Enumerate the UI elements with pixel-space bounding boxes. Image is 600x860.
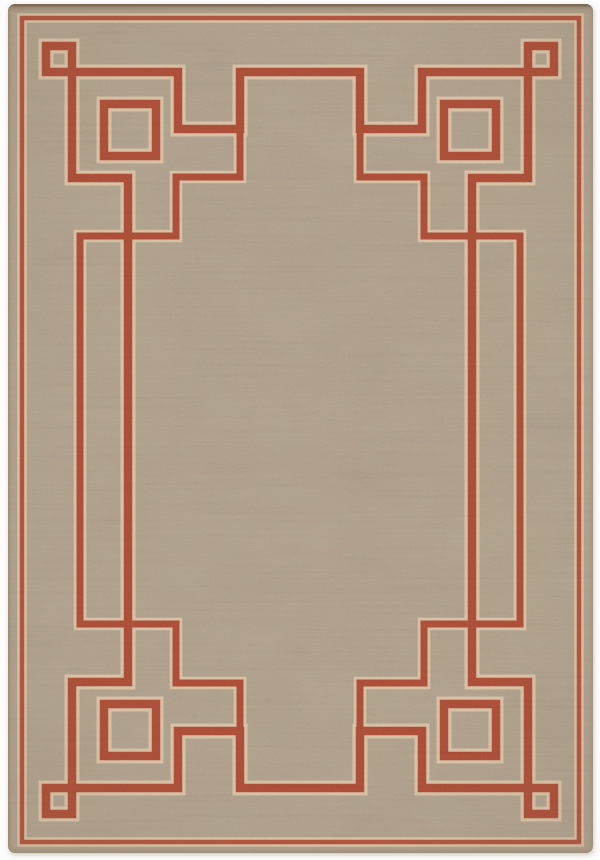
rug-vignette <box>8 4 593 853</box>
product-photo-canvas <box>0 0 600 860</box>
rug-image <box>0 0 600 860</box>
rug-body <box>8 4 593 853</box>
